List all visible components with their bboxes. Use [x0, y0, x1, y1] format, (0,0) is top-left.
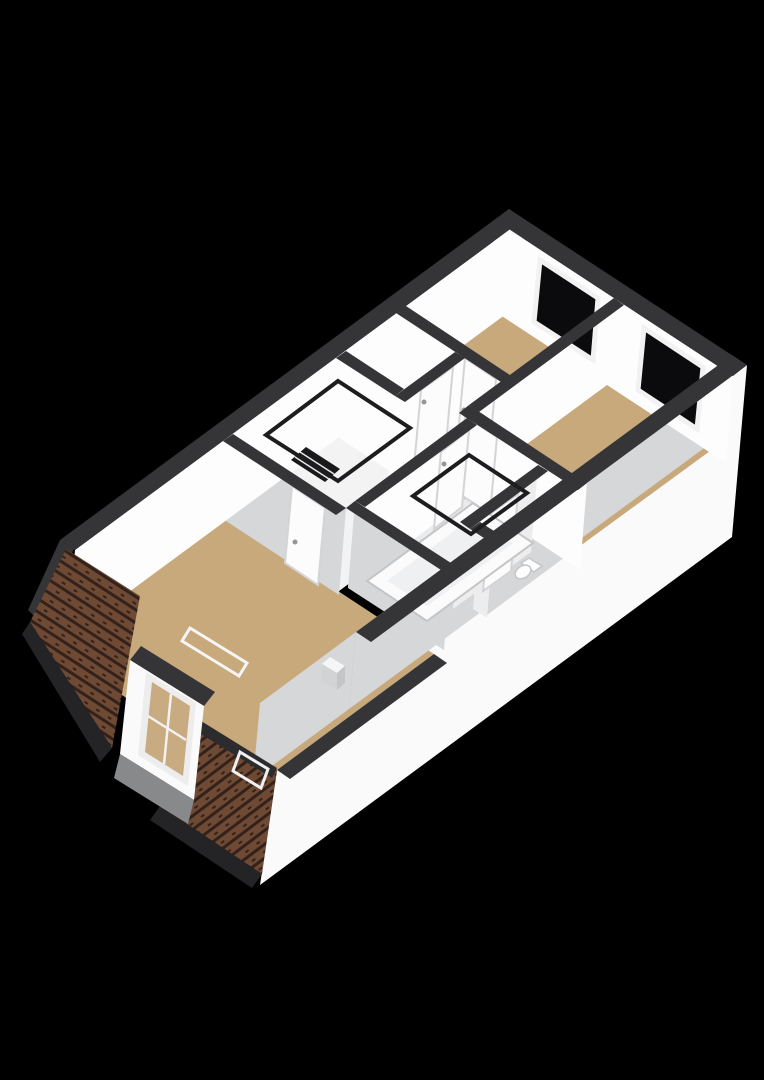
- door-handle: [442, 462, 447, 467]
- door-handle: [422, 400, 427, 405]
- floorplan-stage: [0, 0, 764, 1080]
- door-handle: [293, 540, 298, 545]
- floorplan-3d-render: [0, 0, 764, 1080]
